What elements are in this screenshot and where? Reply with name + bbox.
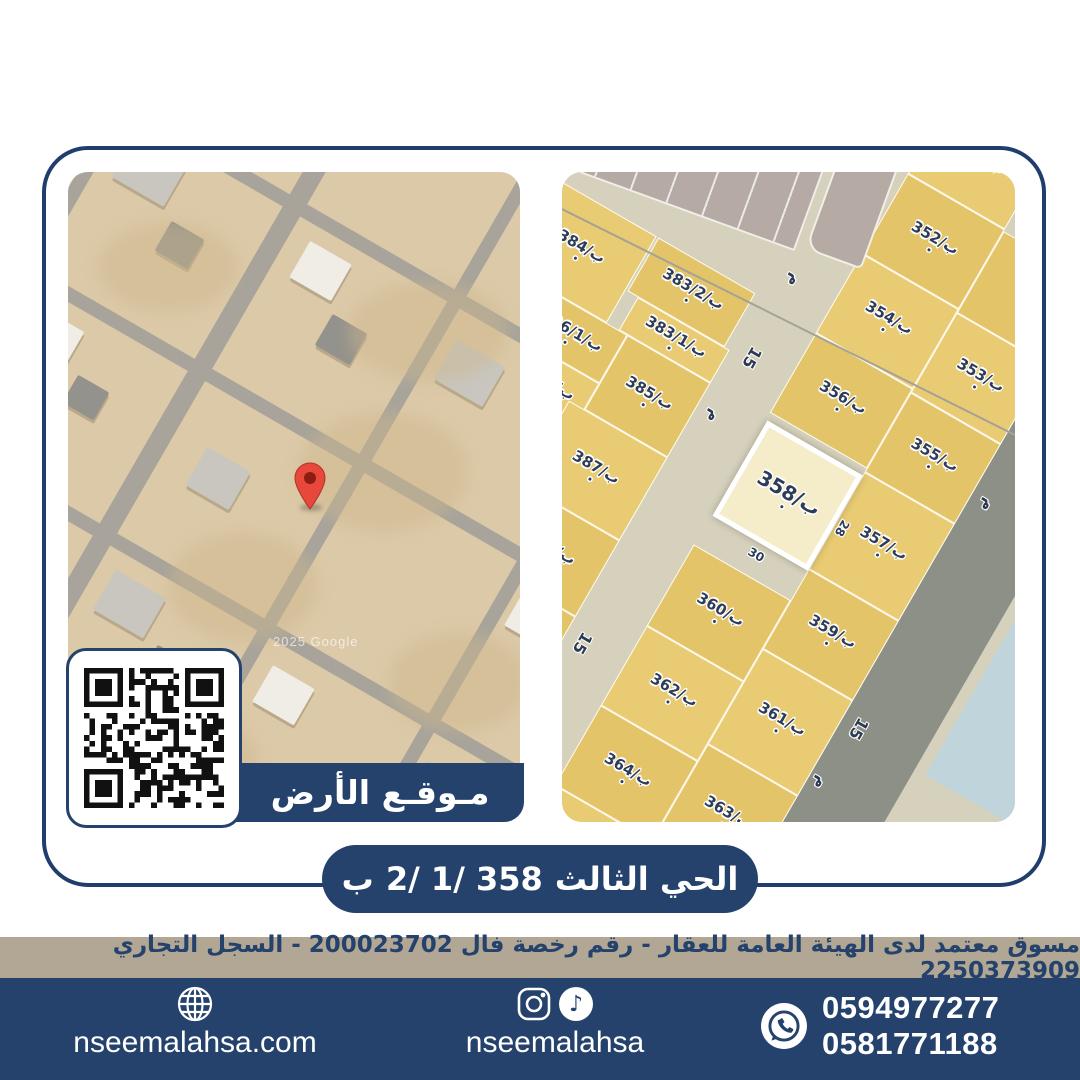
parcel-label: ب/357 <box>854 524 910 569</box>
parcel-label: ب/389 <box>562 529 578 574</box>
parcel-label: ب/352 <box>905 219 961 264</box>
building <box>112 172 190 207</box>
parcel-grid: ب/384ب/383/2ب/383/1ب/386/1ب/386/2ب/385ب/… <box>562 172 1015 822</box>
parcel-label: ب/360 <box>691 590 747 635</box>
location-pin-icon <box>294 462 326 510</box>
parcel-label: ب/385 <box>620 374 676 419</box>
phone-number-2: 0581771188 <box>822 1026 999 1062</box>
building <box>185 447 250 510</box>
map-watermark: 2025 Google <box>273 634 358 649</box>
globe-icon <box>176 985 214 1023</box>
license-text: مسوق معتمد لدى الهيئة العامة للعقار - رق… <box>0 932 1080 984</box>
parcel-label: ب/358 <box>751 467 824 525</box>
parcel-label: ب/355 <box>905 436 961 481</box>
parcel-label: ب/387 <box>566 448 622 493</box>
building <box>93 570 166 639</box>
real-estate-flyer: 2025 Google ب/384ب/383/2ب/383/1ب/386/1ب/… <box>0 0 1080 1080</box>
street-label: 15 <box>569 629 597 658</box>
parcel-label: ب/354 <box>859 299 915 344</box>
building <box>68 310 84 367</box>
parcel-label: ب/363 <box>698 793 754 822</box>
street-label: 15 <box>738 343 766 372</box>
sand-patch <box>168 532 318 642</box>
district-label: الحي الثالث <box>555 860 739 898</box>
parcel-label: ب/361 <box>752 700 808 745</box>
sand-patch <box>98 222 238 312</box>
dimension-label: 30 <box>745 545 766 565</box>
street-label: م <box>784 271 806 291</box>
parcel-label: ب/356 <box>813 378 869 423</box>
street-label: م <box>703 407 725 427</box>
instagram-icon <box>517 987 551 1021</box>
website-label: nseemalahsa.com <box>40 1026 350 1060</box>
social-group: ♪ nseemalahsa <box>400 984 710 1060</box>
parcel-label: ب/353 <box>951 356 1007 401</box>
whatsapp-icon <box>760 1002 808 1050</box>
location-banner-label: مـوقـع الأرض <box>271 773 490 812</box>
parcel-label: ب/350 <box>952 172 1008 182</box>
location-banner: مـوقـع الأرض <box>236 763 524 822</box>
sand-patch <box>348 282 508 382</box>
parcel-label: ب/384 <box>562 227 608 272</box>
contact-bar: nseemalahsa.com ♪ nseemalahsa <box>0 978 1080 1080</box>
building <box>252 665 315 725</box>
parcel-label: ب/364 <box>598 751 654 796</box>
license-strip: مسوق معتمد لدى الهيئة العامة للعقار - رق… <box>0 937 1080 978</box>
parcel-map: ب/384ب/383/2ب/383/1ب/386/1ب/386/2ب/385ب/… <box>562 172 1015 822</box>
parcel-label: ب/362 <box>644 671 700 716</box>
sand-patch <box>388 632 520 732</box>
phone-number-1: 0594977277 <box>822 990 999 1026</box>
tiktok-icon: ♪ <box>559 987 593 1021</box>
qr-code <box>66 648 242 828</box>
parcel-label: ب/359 <box>803 612 859 657</box>
phone-group: 0594977277 0581771188 <box>760 990 999 1061</box>
map-card: 2025 Google ب/384ب/383/2ب/383/1ب/386/1ب/… <box>42 146 1046 887</box>
plot-suffix: ب <box>342 860 374 898</box>
website-group: nseemalahsa.com <box>40 984 350 1060</box>
plot-number: 2/ 1/ 358 <box>386 860 543 898</box>
social-handle-label: nseemalahsa <box>400 1026 710 1060</box>
building <box>68 375 109 421</box>
building <box>289 241 352 301</box>
district-plot-pill: الحي الثالث 2/ 1/ 358 ب <box>322 845 758 913</box>
qr-code-pattern <box>84 668 224 808</box>
